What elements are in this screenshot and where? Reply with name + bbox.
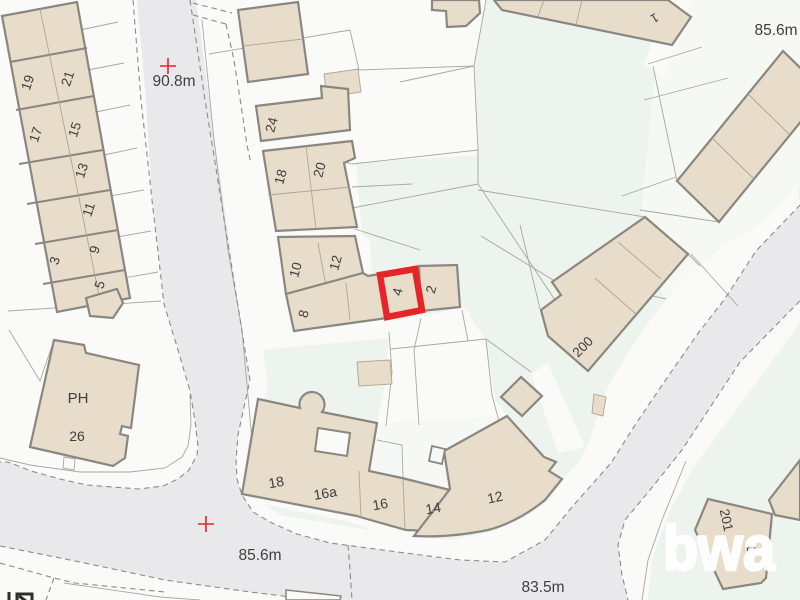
svg-text:14: 14 bbox=[424, 499, 442, 517]
svg-text:PH: PH bbox=[68, 390, 89, 407]
svg-text:bwa: bwa bbox=[663, 514, 776, 584]
svg-text:16: 16 bbox=[371, 495, 389, 513]
svg-text:90.8m: 90.8m bbox=[152, 73, 195, 90]
svg-text:83.5m: 83.5m bbox=[521, 579, 564, 596]
svg-text:85.6m: 85.6m bbox=[238, 547, 281, 564]
svg-text:85.6m: 85.6m bbox=[754, 22, 797, 39]
svg-text:18: 18 bbox=[267, 473, 285, 491]
svg-text:26: 26 bbox=[69, 428, 85, 444]
